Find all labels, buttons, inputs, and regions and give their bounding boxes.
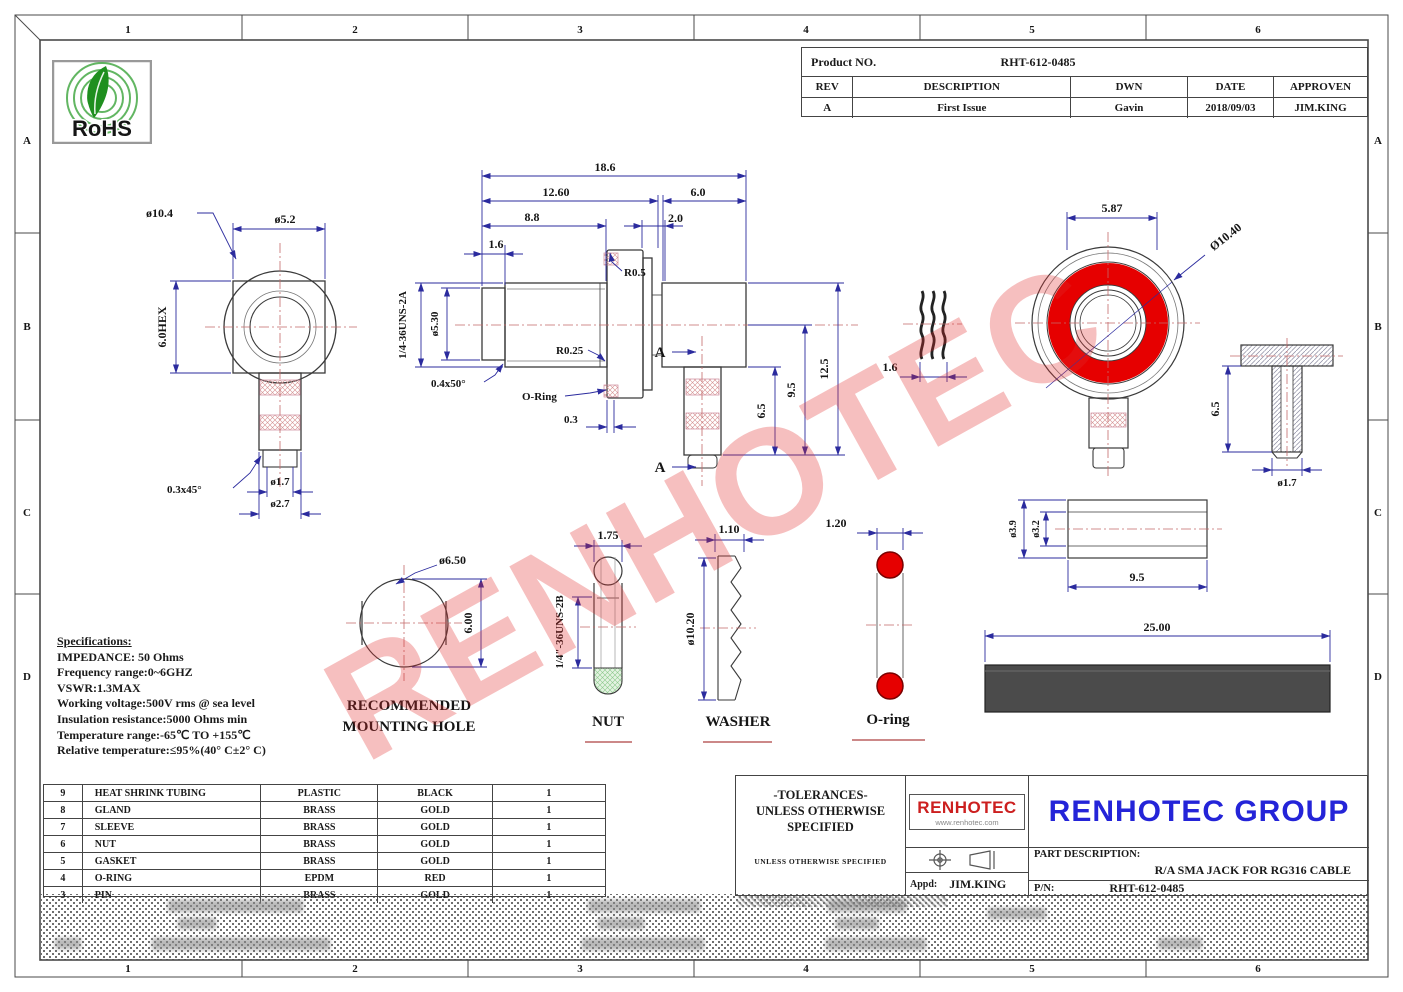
part-material: EPDM (261, 870, 378, 886)
leaf-icon (87, 66, 108, 118)
part-qty: 1 (493, 802, 605, 818)
dim-gasket-thickness: 1.6 (883, 360, 898, 374)
tolerances-line: -TOLERANCES- (736, 787, 905, 803)
table-row: 9 HEAT SHRINK TUBING PLASTIC BLACK 1 (44, 785, 605, 802)
part-no: 8 (44, 802, 83, 818)
zone-col: 1 (125, 24, 131, 36)
nut-view: 1.75 1/4"-36UNS-2B NUT (554, 528, 642, 742)
zone-row: D (23, 671, 31, 683)
table-row: 5 GASKET BRASS GOLD 1 (44, 853, 605, 870)
rohs-label: RoHS (72, 116, 132, 141)
part-no: 7 (44, 819, 83, 835)
zone-row: C (1374, 507, 1382, 519)
heat-shrink-tubing-view: 25.00 (985, 620, 1330, 712)
specs-title: Specifications: (57, 634, 367, 650)
dim-tubing-length: 25.00 (1144, 620, 1171, 634)
part-qty: 1 (493, 870, 605, 886)
part-no: 6 (44, 836, 83, 852)
dim-pin-dia: ø1.7 (1277, 477, 1297, 489)
section-mark-a-bottom: A (655, 460, 666, 476)
drawing-sheet: 1 2 3 4 5 6 1 2 3 4 5 6 A B C D A B C D (0, 0, 1403, 992)
zone-col: 3 (577, 963, 583, 975)
title-block: -TOLERANCES- UNLESS OTHERWISE SPECIFIED … (735, 775, 1368, 896)
date-value: 2018/09/03 (1188, 98, 1274, 118)
part-finish: GOLD (378, 836, 492, 852)
part-material: BRASS (261, 802, 378, 818)
dim-dia-body: ø5.2 (275, 212, 296, 226)
zone-row: C (23, 507, 31, 519)
product-no-label: Product NO. (802, 55, 923, 70)
company-logo: RENHOTEC www.renhotec.com (906, 776, 1029, 847)
third-angle-projection-icon (924, 850, 1010, 870)
logo-url: www.renhotec.com (917, 818, 1016, 827)
specifications: Specifications: IMPEDANCE: 50 Ohms Frequ… (57, 634, 367, 759)
part-description-value: R/A SMA JACK FOR RG316 CABLE (1155, 863, 1351, 878)
dim-dia-outer: ø10.4 (146, 206, 173, 220)
part-name: HEAT SHRINK TUBING (83, 785, 262, 801)
dim-h-barrel: 6.5 (754, 404, 768, 419)
dim-dia-barrel: ø2.7 (270, 498, 290, 510)
section-view: 18.6 12.60 6.0 8.8 2.0 1.6 R0.5 ø5.30 1/… (397, 160, 858, 486)
part-material: BRASS (261, 853, 378, 869)
crimp-hatch (686, 379, 719, 395)
rear-view: 5.87 Ø10.40 (1015, 201, 1244, 476)
col-approven: APPROVEN (1274, 77, 1367, 97)
washer-caption: WASHER (705, 714, 770, 730)
sleeve-view: ø3.9 ø3.2 9.5 (1008, 500, 1222, 592)
part-finish: RED (378, 870, 492, 886)
o-ring-caption: O-ring (866, 712, 910, 728)
dim-chamfer: 0.3x45° (167, 484, 202, 496)
part-qty: 1 (493, 819, 605, 835)
o-ring-section (604, 385, 618, 397)
dim-dia-pin: ø1.7 (270, 476, 290, 488)
centerlines (205, 243, 357, 490)
description-value: First Issue (853, 98, 1071, 118)
dim-flange-radius: R0.5 (624, 267, 646, 279)
zone-col: 6 (1255, 963, 1261, 975)
company-name: RENHOTEC GROUP (1029, 776, 1369, 847)
product-no-value: RHT-612-0485 (923, 55, 1153, 70)
approven-value: JIM.KING (1274, 98, 1367, 118)
zone-col: 5 (1029, 24, 1035, 36)
tolerances-cell: -TOLERANCES- UNLESS OTHERWISE SPECIFIED … (736, 776, 906, 895)
zone-col: 5 (1029, 963, 1035, 975)
part-finish: GOLD (378, 802, 492, 818)
part-material: PLASTIC (261, 785, 378, 801)
logo-wordmark: RENHOTEC (917, 798, 1016, 818)
dim-len-step: 1.6 (489, 237, 504, 251)
dim-len-rear: 6.0 (691, 185, 706, 199)
dim-groove: 0.3 (564, 414, 578, 426)
revision-header-row: REV DESCRIPTION DWN DATE APPROVEN (802, 77, 1367, 97)
censored-region (41, 894, 1368, 960)
zone-col: 1 (125, 963, 131, 975)
approved-cell: Appd: JIM.KING (906, 872, 1029, 895)
part-no: 4 (44, 870, 83, 886)
o-ring-view: 1.20 O-ring (826, 516, 926, 740)
dim-hole-height: 6.00 (461, 613, 475, 634)
zone-row: A (1374, 135, 1382, 147)
spec-line: Temperature range:-65℃ TO +155℃ (57, 728, 367, 744)
dim-len-total: 18.6 (595, 160, 616, 174)
dim-dia-outer: Ø10.40 (1207, 220, 1244, 253)
gasket-view: 1.6 (883, 291, 968, 382)
crimp-hatch (1091, 413, 1126, 427)
crimp-hatch (686, 413, 719, 429)
dim-flat-width: 5.87 (1102, 201, 1123, 215)
tolerances-line: UNLESS OTHERWISE (736, 803, 905, 819)
dim-len-to-flange: 12.60 (543, 185, 570, 199)
col-date: DATE (1188, 77, 1274, 97)
part-number-cell: P/N: RHT-612-0485 (1029, 880, 1369, 895)
part-material: BRASS (261, 819, 378, 835)
section-mark-a-top: A (655, 345, 666, 361)
col-rev: REV (802, 77, 853, 97)
part-qty: 1 (493, 836, 605, 852)
part-qty: 1 (493, 785, 605, 801)
spec-line: IMPEDANCE: 50 Ohms (57, 650, 367, 666)
product-table: Product NO. RHT-612-0485 REV DESCRIPTION… (801, 47, 1368, 117)
part-finish: GOLD (378, 819, 492, 835)
part-material: BRASS (261, 836, 378, 852)
zone-col: 3 (577, 24, 583, 36)
dim-len-thread: 8.8 (525, 210, 540, 224)
o-ring-cross-section (877, 552, 903, 578)
table-row: 4 O-RING EPDM RED 1 (44, 870, 605, 887)
zone-col: 4 (803, 963, 809, 975)
part-no: 9 (44, 785, 83, 801)
dwn-value: Gavin (1071, 98, 1188, 118)
dim-h-axis: 9.5 (784, 383, 798, 398)
tolerances-line: SPECIFIED (736, 819, 905, 835)
table-row: 7 SLEEVE BRASS GOLD 1 (44, 819, 605, 836)
tolerances-small-note: UNLESS OTHERWISE SPECIFIED (736, 857, 905, 866)
zone-row: B (23, 321, 31, 333)
dim-sleeve-length: 9.5 (1130, 570, 1145, 584)
part-name: GLAND (83, 802, 262, 818)
part-name: SLEEVE (83, 819, 262, 835)
thread-spec: 1/4-36UNS-2A (397, 291, 409, 359)
col-description: DESCRIPTION (853, 77, 1071, 97)
o-ring-cross-section (877, 673, 903, 699)
zone-col: 2 (352, 963, 358, 975)
washer-view: 1.10 ø10.20 WASHER (683, 522, 772, 742)
appd-value: JIM.KING (949, 877, 1006, 892)
part-finish: BLACK (378, 785, 492, 801)
dim-root-radius: R0.25 (556, 345, 584, 357)
zone-col: 6 (1255, 24, 1261, 36)
nut-knurl-section (594, 668, 622, 694)
pin-view: 6.5 ø1.7 (1208, 338, 1343, 489)
rev-value: A (802, 98, 853, 118)
dim-oring-cs: 1.20 (826, 516, 847, 530)
revision-row: A First Issue Gavin 2018/09/03 JIM.KING (802, 97, 1367, 118)
spec-line: Relative temperature:≤95%(40° C±2° C) (57, 743, 367, 759)
spec-line: Insulation resistance:5000 Ohms min (57, 712, 367, 728)
projection-symbol-cell (906, 847, 1029, 872)
o-ring-callout: O-Ring (522, 391, 557, 403)
dim-sleeve-id: ø3.2 (1031, 520, 1042, 538)
nut-caption: NUT (592, 714, 624, 730)
part-name: NUT (83, 836, 262, 852)
part-name: GASKET (83, 853, 262, 869)
rohs-logo: RoHS (52, 60, 152, 144)
part-no: 5 (44, 853, 83, 869)
pn-label: P/N: (1029, 883, 1054, 894)
dim-pin-height: 6.5 (1208, 402, 1222, 417)
dim-dia-thread: ø5.30 (429, 311, 441, 336)
part-finish: GOLD (378, 853, 492, 869)
dim-h-total: 12.5 (817, 359, 831, 380)
spec-line: Working voltage:500V rms @ sea level (57, 696, 367, 712)
spec-line: Frequency range:0~6GHZ (57, 665, 367, 681)
zone-row: D (1374, 671, 1382, 683)
zone-row: A (23, 135, 31, 147)
table-row: 8 GLAND BRASS GOLD 1 (44, 802, 605, 819)
zone-col: 4 (803, 24, 809, 36)
dim-hole-dia: ø6.50 (439, 553, 466, 567)
front-view: ø10.4 ø5.2 6.0HEX 0.3x45° ø1.7 ø2.7 (146, 206, 357, 519)
dim-len-gap: 2.0 (668, 211, 683, 225)
parts-table: 9 HEAT SHRINK TUBING PLASTIC BLACK 1 8 G… (43, 784, 606, 897)
appd-label: Appd: (906, 879, 937, 890)
part-description-label: PART DESCRIPTION: (1034, 849, 1140, 860)
dim-hex: 6.0HEX (155, 306, 169, 347)
table-row: 6 NUT BRASS GOLD 1 (44, 836, 605, 853)
zone-row: B (1374, 321, 1382, 333)
zone-col: 2 (352, 24, 358, 36)
dim-washer-thickness: 1.10 (719, 522, 740, 536)
part-name: O-RING (83, 870, 262, 886)
dim-nut-width: 1.75 (598, 528, 619, 542)
part-qty: 1 (493, 853, 605, 869)
dim-washer-dia: ø10.20 (683, 613, 697, 646)
nut-thread-spec: 1/4"-36UNS-2B (554, 595, 566, 669)
col-dwn: DWN (1071, 77, 1188, 97)
dim-sleeve-od: ø3.9 (1008, 520, 1019, 538)
part-description-cell: PART DESCRIPTION: R/A SMA JACK FOR RG316… (1029, 847, 1369, 880)
spec-line: VSWR:1.3MAX (57, 681, 367, 697)
dim-chamfer: 0.4x50° (431, 378, 466, 390)
